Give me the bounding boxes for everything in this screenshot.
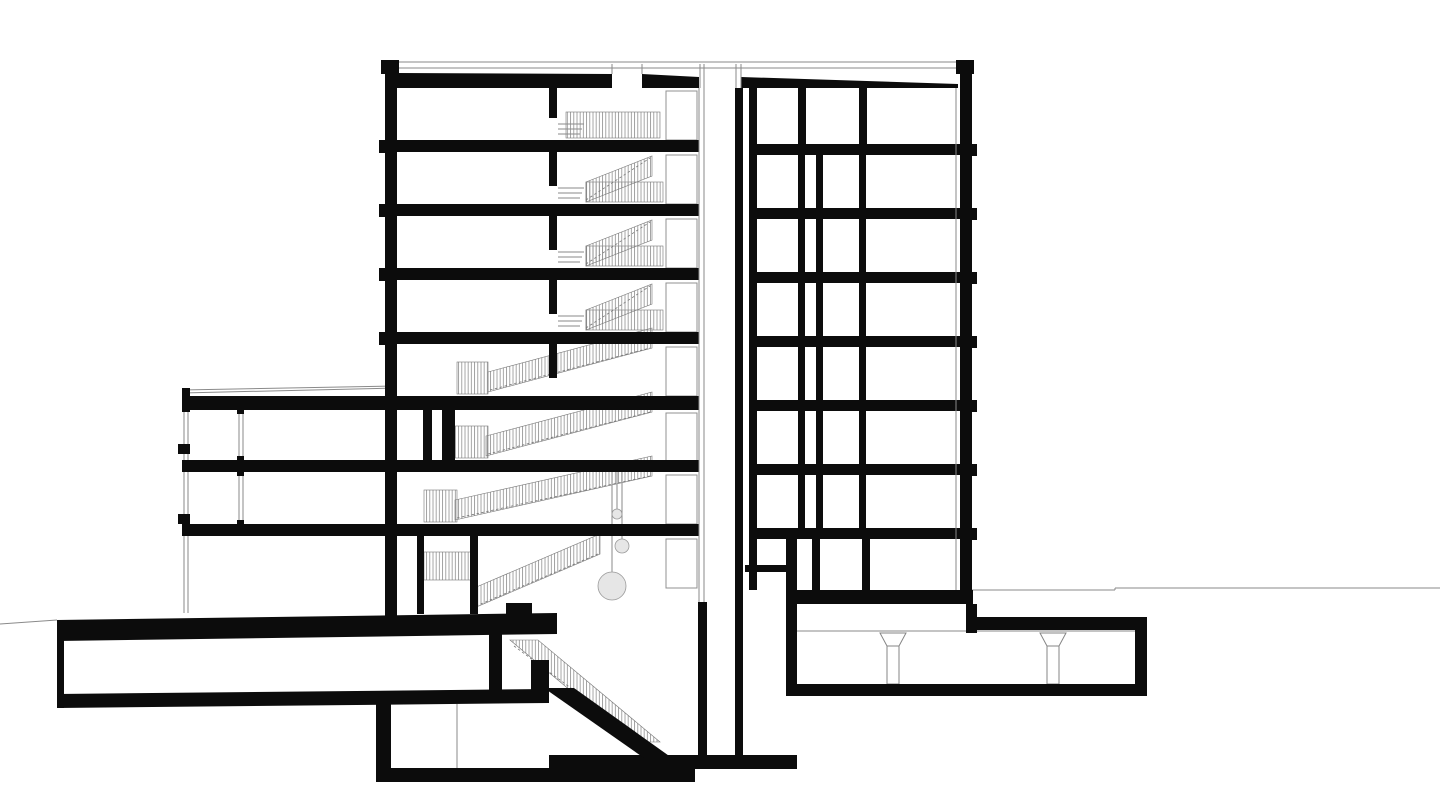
- left-annex: [178, 386, 397, 613]
- elevator-shaft: [698, 64, 743, 756]
- stair-core: [424, 91, 697, 748]
- building-section-drawing: [0, 0, 1440, 794]
- architectural-section-page: [0, 0, 1440, 794]
- floor-slabs: [182, 140, 973, 604]
- roof: [397, 73, 958, 88]
